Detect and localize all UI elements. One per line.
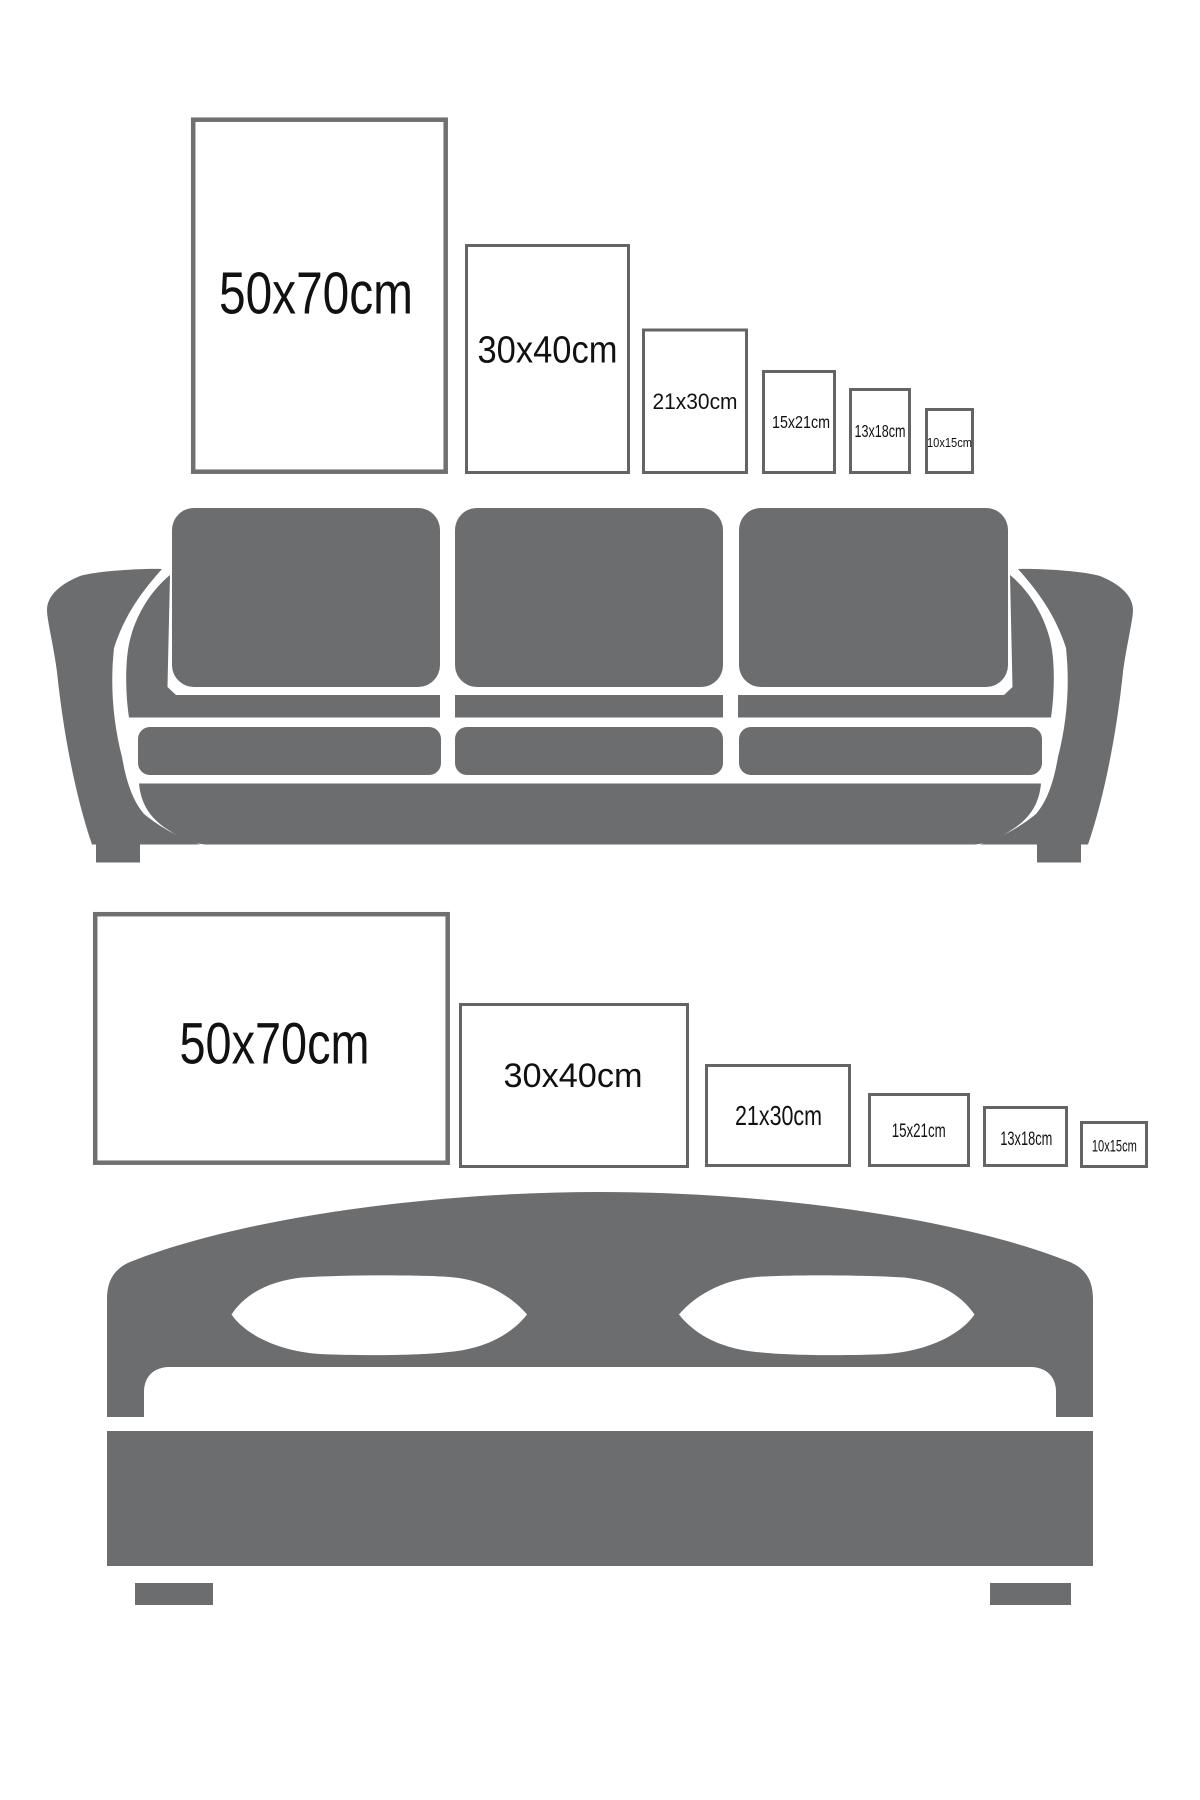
svg-text:13x18cm: 13x18cm bbox=[855, 421, 906, 441]
svg-text:10x15cm: 10x15cm bbox=[927, 435, 972, 450]
svg-text:50x70cm: 50x70cm bbox=[219, 261, 413, 327]
svg-text:15x21cm: 15x21cm bbox=[892, 1120, 946, 1142]
svg-text:15x21cm: 15x21cm bbox=[772, 412, 830, 432]
svg-text:13x18cm: 13x18cm bbox=[1000, 1128, 1052, 1150]
svg-text:21x30cm: 21x30cm bbox=[735, 1100, 822, 1131]
svg-text:30x40cm: 30x40cm bbox=[504, 1057, 643, 1095]
svg-text:21x30cm: 21x30cm bbox=[653, 389, 738, 414]
svg-text:10x15cm: 10x15cm bbox=[1092, 1137, 1137, 1155]
svg-text:30x40cm: 30x40cm bbox=[478, 330, 618, 372]
svg-text:50x70cm: 50x70cm bbox=[180, 1012, 370, 1077]
